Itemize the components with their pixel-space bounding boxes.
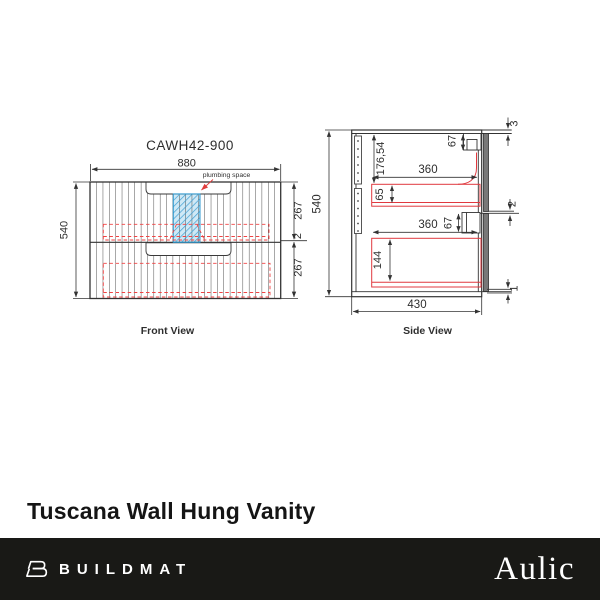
plumbing-space-label: plumbing space — [203, 172, 251, 179]
buildmat-brand-text: BUILDMAT — [59, 561, 192, 578]
top-drawer-front-panel — [484, 134, 489, 212]
technical-drawing: CAWH42-900 880 plumbing space — [0, 0, 600, 460]
side-bottom-gap-dim: 1 — [509, 285, 521, 291]
front-gap-dim: 2 — [292, 233, 304, 239]
bottom-drawer-handle-recess — [146, 243, 231, 256]
buildmat-logo-icon — [25, 559, 50, 579]
side-top-gap-dim: 3 — [509, 120, 521, 126]
side-middle-gap-dim: 2 — [507, 201, 519, 207]
product-title: Tuscana Wall Hung Vanity — [27, 498, 316, 525]
side-top-drawer-depth-dim: 360 — [418, 164, 437, 176]
front-view-drawing: CAWH42-900 880 plumbing space — [59, 138, 308, 337]
aulic-logo-text: Aulic — [494, 551, 575, 588]
buildmat-brand: BUILDMAT — [25, 559, 192, 579]
side-top-clearance-dim: 176,54 — [375, 142, 387, 176]
top-drawer-handle-recess — [146, 182, 231, 194]
side-top-runner-dim: 67 — [447, 135, 459, 147]
side-bottom-runner-dim: 67 — [443, 217, 455, 229]
bottom-drawer-front-panel — [484, 214, 489, 292]
front-view-label: Front View — [141, 325, 195, 337]
front-width-dim: 880 — [178, 158, 196, 170]
side-view-label: Side View — [403, 325, 453, 337]
side-bottom-drawer-depth-dim: 360 — [418, 219, 437, 231]
front-bottom-drawer-dim: 267 — [293, 258, 305, 276]
front-top-drawer-dim: 267 — [293, 201, 305, 219]
side-bottom-drawer-inner-dim: 144 — [372, 251, 384, 269]
front-height-dim: 540 — [59, 221, 71, 239]
footer-bar: BUILDMAT Aulic — [0, 538, 600, 600]
side-view-drawing: 540 430 176,54 360 65 67 360 67 144 3 — [312, 118, 521, 338]
side-top-drawer-inner-dim: 65 — [374, 188, 386, 200]
side-depth-dim: 430 — [407, 299, 426, 311]
front-model-label: CAWH42-900 — [146, 138, 234, 153]
side-height-dim: 540 — [312, 194, 324, 213]
